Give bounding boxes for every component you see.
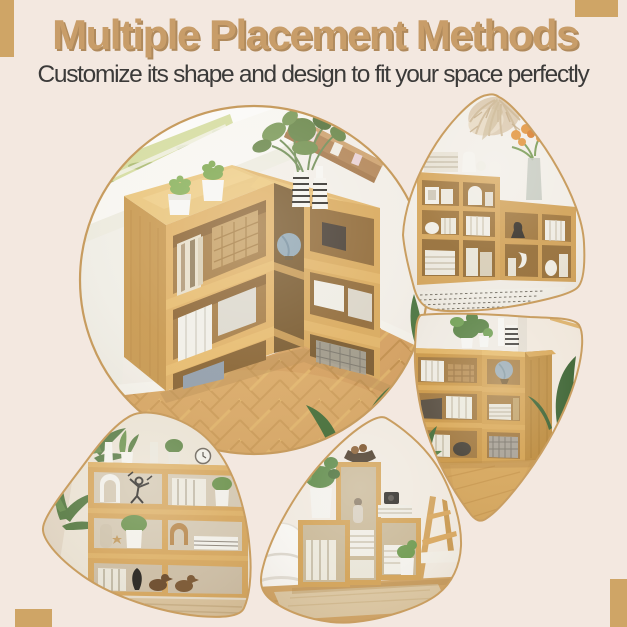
svg-text:Multiple Placement Methods: Multiple Placement Methods bbox=[52, 11, 578, 58]
svg-text:Customize its shape and design: Customize its shape and design to fit yo… bbox=[37, 61, 590, 88]
